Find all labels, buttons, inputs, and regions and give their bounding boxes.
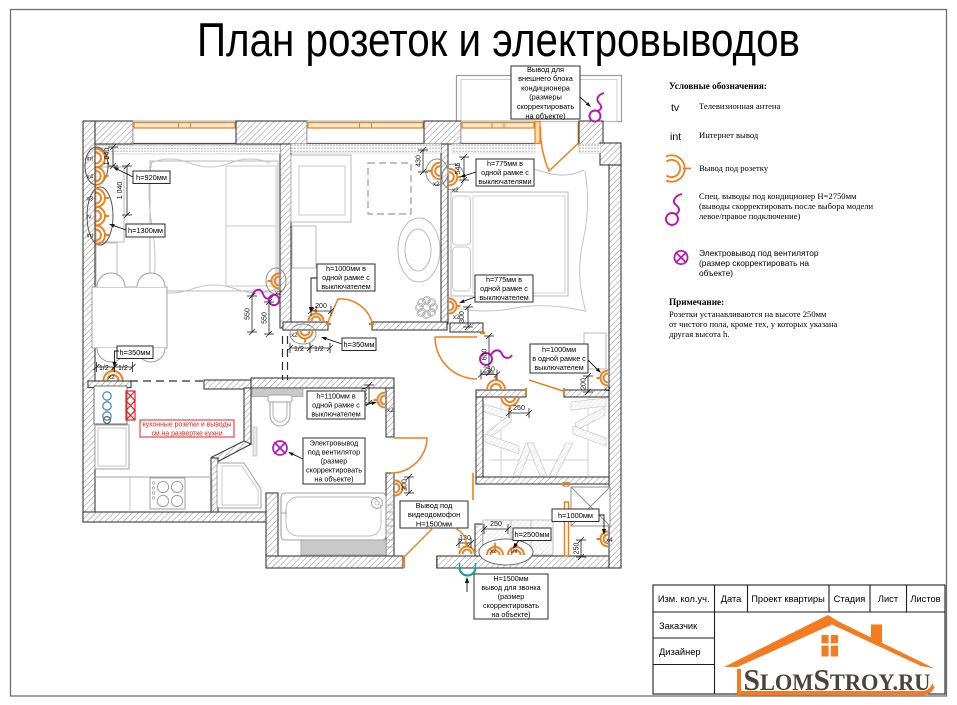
svg-text:скорректировать: скорректировать <box>306 466 362 475</box>
svg-text:x2: x2 <box>108 374 115 381</box>
svg-text:1/2: 1/2 <box>314 346 324 353</box>
svg-text:левое/правое подключение): левое/правое подключение) <box>699 211 801 221</box>
svg-text:h=350мм: h=350мм <box>120 348 151 357</box>
svg-text:План розеток и электровыводов: План розеток и электровыводов <box>197 13 800 66</box>
svg-text:x2: x2 <box>433 181 440 188</box>
svg-text:см.на развертке кухни: см.на развертке кухни <box>151 430 222 437</box>
svg-text:видеодомофон: видеодомофон <box>408 510 460 519</box>
svg-text:скорректировать: скорректировать <box>483 601 539 610</box>
svg-text:200: 200 <box>402 479 409 491</box>
svg-text:x4: x4 <box>606 537 613 544</box>
svg-text:Заказчик: Заказчик <box>659 621 698 631</box>
svg-text:кухонные розетки и выводы: кухонные розетки и выводы <box>143 422 232 429</box>
svg-text:int: int <box>87 156 94 163</box>
svg-text:Вывод под: Вывод под <box>416 501 453 510</box>
svg-text:выключателем: выключателем <box>321 282 370 291</box>
svg-text:tv: tv <box>87 214 93 221</box>
svg-text:в одной рамке с: в одной рамке с <box>532 354 586 363</box>
svg-text:внешнего блока: внешнего блока <box>518 74 574 83</box>
svg-text:(размер: (размер <box>321 457 348 466</box>
svg-text:Примечание:: Примечание: <box>669 297 724 307</box>
svg-text:545: 545 <box>455 163 462 175</box>
svg-text:1/2: 1/2 <box>294 346 304 353</box>
svg-text:одной рамке с: одной рамке с <box>480 284 528 293</box>
svg-text:x3: x3 <box>87 196 94 203</box>
svg-text:250: 250 <box>513 405 525 412</box>
svg-text:1/2: 1/2 <box>118 365 128 372</box>
svg-text:Интернет вывод: Интернет вывод <box>699 130 759 140</box>
svg-text:скорректировать: скорректировать <box>517 102 575 111</box>
svg-text:(размер: (размер <box>498 592 525 601</box>
svg-text:Проект квартиры: Проект квартиры <box>751 594 825 604</box>
svg-text:200: 200 <box>581 378 588 390</box>
svg-text:выключателем: выключателем <box>534 363 583 372</box>
svg-text:Дата: Дата <box>721 594 742 604</box>
svg-text:Электровывод: Электровывод <box>310 438 359 447</box>
svg-text:x2: x2 <box>604 386 611 393</box>
svg-text:на объекте): на объекте) <box>314 475 353 484</box>
svg-text:430: 430 <box>416 155 423 167</box>
svg-text:x2: x2 <box>452 187 459 194</box>
svg-text:Розетки устанавливаются на выс: Розетки устанавливаются на высоте 250мм <box>669 309 827 319</box>
svg-text:200: 200 <box>315 303 327 310</box>
svg-text:Электровывод под вентилятор: Электровывод под вентилятор <box>699 248 819 258</box>
svg-text:250: 250 <box>490 521 502 528</box>
svg-text:int: int <box>87 233 94 240</box>
svg-text:(размеры: (размеры <box>529 93 562 102</box>
svg-text:tv: tv <box>671 102 680 114</box>
svg-text:Вывод для: Вывод для <box>527 65 564 74</box>
svg-text:(выводы скорректировать после: (выводы скорректировать после выбора мод… <box>699 201 874 211</box>
svg-text:Стадия: Стадия <box>834 594 866 604</box>
svg-text:h=920мм: h=920мм <box>136 173 167 182</box>
svg-text:x4: x4 <box>87 174 94 181</box>
svg-text:SLOMSTROY.RU: SLOMSTROY.RU <box>744 662 931 697</box>
svg-text:Изм. кол.уч.: Изм. кол.уч. <box>658 594 710 604</box>
svg-text:на объекте): на объекте) <box>525 111 565 120</box>
svg-text:Дизайнер: Дизайнер <box>659 647 701 657</box>
svg-text:550: 550 <box>262 312 269 324</box>
svg-text:одной рамке с: одной рамке с <box>322 273 370 282</box>
svg-text:250: 250 <box>574 543 581 555</box>
svg-text:h=350мм: h=350мм <box>344 340 375 349</box>
svg-text:Телевизионная антена: Телевизионная антена <box>699 101 780 111</box>
svg-text:выключателями: выключателями <box>478 177 531 186</box>
svg-text:одной рамке с: одной рамке с <box>312 401 360 410</box>
svg-text:выключателем: выключателем <box>311 410 360 419</box>
svg-text:Листов: Листов <box>910 594 940 604</box>
svg-text:1/2: 1/2 <box>99 365 109 372</box>
svg-text:на объекте): на объекте) <box>491 610 530 619</box>
svg-text:кондиционера: кондиционера <box>521 83 571 92</box>
svg-text:H=1500мм: H=1500мм <box>493 574 528 583</box>
svg-text:другая высота h.: другая высота h. <box>669 329 729 339</box>
svg-text:1 040: 1 040 <box>117 182 124 200</box>
svg-text:Вывод под розетку: Вывод под розетку <box>699 163 769 173</box>
svg-text:600: 600 <box>482 349 489 361</box>
svg-text:под вентилятор: под вентилятор <box>308 447 360 456</box>
svg-text:выключателем: выключателем <box>479 293 528 302</box>
svg-text:h=1300мм: h=1300мм <box>128 226 163 235</box>
svg-text:h=1100мм в: h=1100мм в <box>316 391 356 400</box>
svg-text:h=1000мм: h=1000мм <box>542 345 576 354</box>
svg-text:(размер скорректировать на: (размер скорректировать на <box>699 258 809 268</box>
svg-text:h=775мм в: h=775мм в <box>486 275 522 284</box>
svg-text:h=1000мм в: h=1000мм в <box>326 264 366 273</box>
svg-text:550: 550 <box>245 308 252 320</box>
svg-text:h=775мм в: h=775мм в <box>487 159 523 168</box>
svg-text:от чистого пола, кроме тех, у: от чистого пола, кроме тех, у которых ук… <box>669 319 838 329</box>
svg-text:h=1000мм: h=1000мм <box>558 511 593 520</box>
svg-text:x2: x2 <box>387 407 394 414</box>
svg-text:Н=1500мм: Н=1500мм <box>416 519 452 528</box>
svg-text:Условные обозначения:: Условные обозначения: <box>669 81 767 91</box>
svg-text:вывод для звонка: вывод для звонка <box>481 583 540 592</box>
svg-text:объекте): объекте) <box>699 268 733 278</box>
svg-text:int: int <box>670 131 681 143</box>
svg-text:int: int <box>511 548 518 555</box>
svg-text:250: 250 <box>483 367 495 374</box>
svg-text:x2: x2 <box>291 332 298 339</box>
svg-text:Лист: Лист <box>878 594 899 604</box>
svg-text:Спец. выводы под кондиционер Н: Спец. выводы под кондиционер Н=2750мм <box>699 191 857 201</box>
svg-text:1 040: 1 040 <box>104 148 111 166</box>
svg-text:h=2500мм: h=2500мм <box>514 530 549 539</box>
svg-text:x2: x2 <box>490 548 497 555</box>
svg-text:одной рамке с: одной рамке с <box>481 168 529 177</box>
svg-text:300: 300 <box>459 311 466 323</box>
